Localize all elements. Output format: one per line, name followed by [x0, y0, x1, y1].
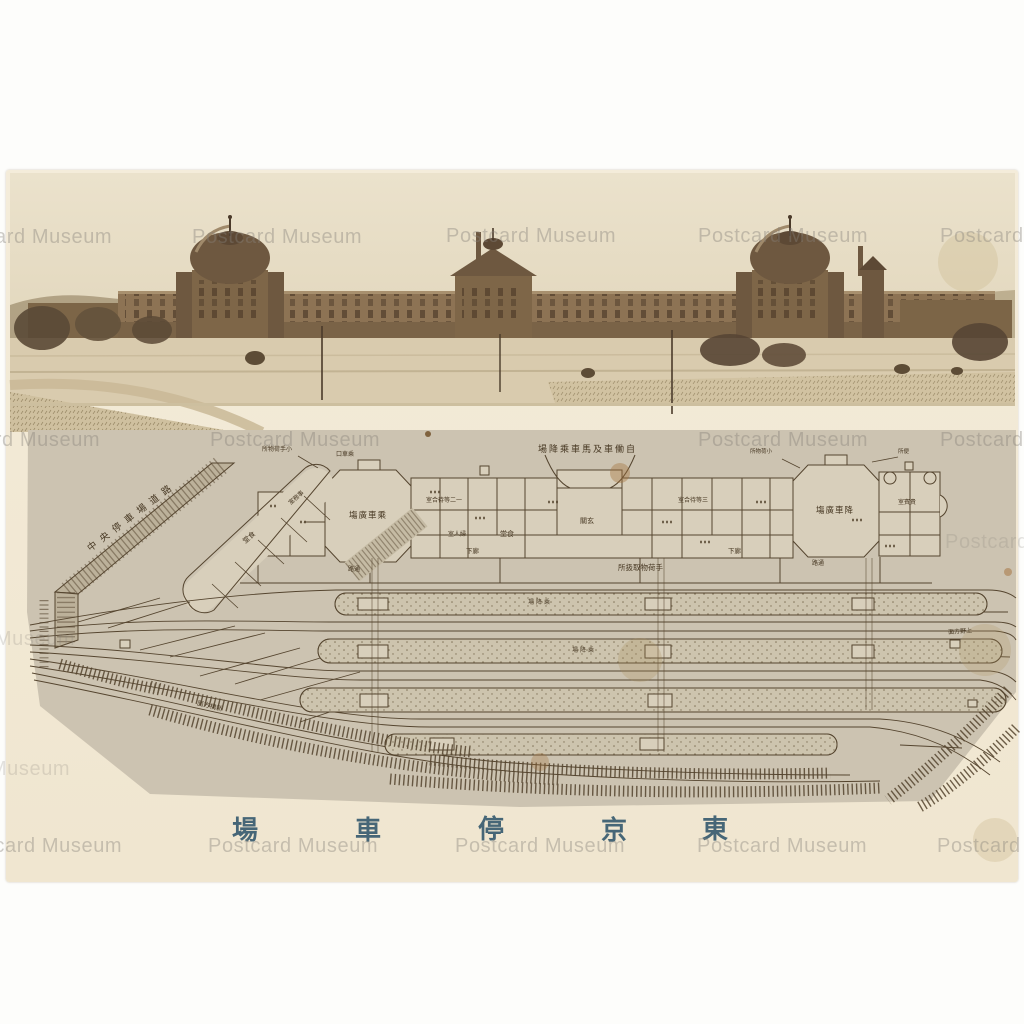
watermark: Postcard Museum [0, 628, 75, 651]
watermark: Postcard Museum [0, 429, 100, 452]
watermark: Postcard Museum [192, 226, 362, 249]
plan-label-entrance-hall: 關玄 [580, 518, 594, 525]
plan-label-third-class-waiting: 室合待等三 [678, 498, 708, 504]
watermark: Postcard Museum [0, 758, 70, 781]
plan-label-carriage-porch: 場降乘車馬及車働自 [538, 446, 637, 455]
watermark: Postcard Museum [210, 429, 380, 452]
plan-label-baggage-office: 所扱取物荷手 [618, 564, 663, 572]
plan-label-passage-south: 路通 [348, 567, 360, 573]
scanned-postcard-page: 中央停車場道路 場降乘車馬及車働自 塲廣車乘 塲廣車降 所扱取物荷手 室合待等二… [0, 0, 1024, 1024]
plan-label-lavatory: 所便 [898, 450, 909, 456]
plan-label-dining-room: 堂食 [500, 531, 514, 538]
watermark: Postcard Museum [937, 835, 1024, 858]
plan-label-passage-north: 路通 [812, 561, 824, 567]
plan-label-corridor-north: 下廊 [728, 548, 741, 555]
plan-label-north-concourse: 塲廣車降 [816, 507, 854, 516]
postcard [6, 170, 1018, 882]
plan-label-platform-1: 場降乘 [528, 600, 552, 606]
watermark: Postcard Museum [455, 835, 625, 858]
plan-label-vip-room: 室賓貴 [898, 500, 916, 506]
watermark: Postcard Museum [940, 429, 1024, 452]
watermark: Postcard Museum [698, 225, 868, 248]
watermark: Postcard Museum [208, 835, 378, 858]
plan-label-platform-2: 場降乘 [572, 648, 596, 654]
watermark: Postcard Museum [698, 429, 868, 452]
plan-label-first-second-waiting: 室合待等二一 [426, 498, 462, 504]
watermark: Postcard Museum [0, 835, 122, 858]
plan-label-south-concourse: 塲廣車乘 [349, 512, 387, 521]
plan-label-ladies-room: 室人婦 [448, 532, 466, 538]
watermark: Postcard Museum [697, 835, 867, 858]
watermark: Postcard Museum [945, 531, 1024, 554]
watermark: Postcard Museum [940, 225, 1024, 248]
plan-label-corridor-south: 下廊 [466, 548, 479, 555]
watermark: Postcard Museum [0, 226, 112, 249]
watermark: Postcard Museum [446, 225, 616, 248]
plan-label-boarding-entrance: 口車乘 [336, 452, 354, 458]
